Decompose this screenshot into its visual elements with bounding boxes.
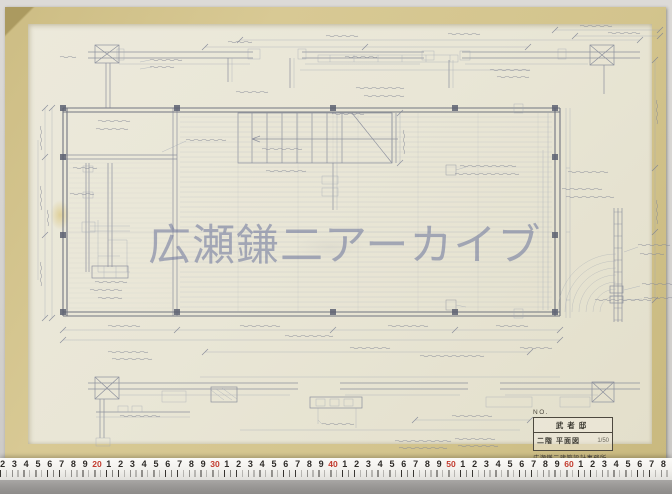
ruler-number: 5 (507, 459, 512, 469)
ruler-number: 8 (71, 459, 76, 469)
ruler-number: 4 (614, 459, 619, 469)
scanned-drawing-page: 広瀬鎌二アーカイブ NO. 武者邸 二階 平面図 1/50 広瀬鎌二建築設計事務… (0, 0, 672, 494)
ruler-number: 8 (425, 459, 430, 469)
ruler-number: 5 (35, 459, 40, 469)
drawing-title: 二階 平面図 (537, 436, 580, 446)
ruler-number: 7 (177, 459, 182, 469)
ruler-number: 6 (165, 459, 170, 469)
ruler-number: 1 (578, 459, 583, 469)
ruler-number: 4 (24, 459, 29, 469)
ruler-number: 3 (366, 459, 371, 469)
ruler-number: 7 (413, 459, 418, 469)
scanner-shadow-strip (0, 480, 672, 494)
ruler-number: 9 (83, 459, 88, 469)
staircase (238, 113, 398, 163)
title-block: NO. 武者邸 二階 平面図 1/50 広瀬鎌二建築設計事務所 (533, 409, 613, 462)
title-block-box: 武者邸 二階 平面図 1/50 (533, 417, 613, 451)
ruler-number: 6 (47, 459, 52, 469)
ruler-number: 3 (484, 459, 489, 469)
ruler-number: 5 (625, 459, 630, 469)
drawing-scale: 1/50 (597, 438, 609, 444)
ruler-number: 8 (307, 459, 312, 469)
ruler-number: 7 (59, 459, 64, 469)
ruler-number: 6 (519, 459, 524, 469)
ruler-number: 2 (590, 459, 595, 469)
ruler-number: 8 (189, 459, 194, 469)
ruler-number: 9 (437, 459, 442, 469)
ruler-number: 1 (106, 459, 111, 469)
ruler-number: 2 (354, 459, 359, 469)
ruler-number: 1 (460, 459, 465, 469)
ruler-number: 5 (153, 459, 158, 469)
ruler-number: 8 (661, 459, 666, 469)
ruler-number: 7 (295, 459, 300, 469)
ruler-red-number: 40 (328, 459, 337, 469)
ruler-number: 9 (319, 459, 324, 469)
ruler-red-number: 30 (210, 459, 219, 469)
ruler-number: 4 (496, 459, 501, 469)
title-block-no-label: NO. (533, 409, 613, 416)
ruler-number: 6 (637, 459, 642, 469)
ruler-number: 6 (401, 459, 406, 469)
ruler-number: 3 (12, 459, 17, 469)
ruler-red-number: 20 (92, 459, 101, 469)
ruler-number: 2 (472, 459, 477, 469)
ruler-number: 4 (260, 459, 265, 469)
ruler-tick-marks (0, 470, 672, 477)
ruler-number: 1 (224, 459, 229, 469)
ruler-number: 2 (0, 459, 5, 469)
ruler-number: 7 (649, 459, 654, 469)
ruler-number: 2 (118, 459, 123, 469)
archive-watermark: 広瀬鎌二アーカイブ (148, 211, 541, 273)
ruler-number: 5 (389, 459, 394, 469)
ruler-number: 6 (283, 459, 288, 469)
ruler-number: 4 (142, 459, 147, 469)
ruler-number: 8 (543, 459, 548, 469)
ruler-number: 5 (271, 459, 276, 469)
ruler-number: 3 (248, 459, 253, 469)
ruler-number: 3 (130, 459, 135, 469)
ruler-number: 9 (201, 459, 206, 469)
ruler-number: 4 (378, 459, 383, 469)
measuring-tape-ruler: 2345678920123456789301234567894012345678… (0, 458, 672, 480)
ruler-red-number: 60 (564, 459, 573, 469)
project-name: 武者邸 (534, 418, 612, 433)
ruler-number: 9 (555, 459, 560, 469)
ruler-number: 1 (342, 459, 347, 469)
ruler-number: 7 (531, 459, 536, 469)
ruler-number: 2 (236, 459, 241, 469)
ruler-number: 3 (602, 459, 607, 469)
hatch-arcs (558, 254, 616, 312)
ruler-red-number: 50 (446, 459, 455, 469)
